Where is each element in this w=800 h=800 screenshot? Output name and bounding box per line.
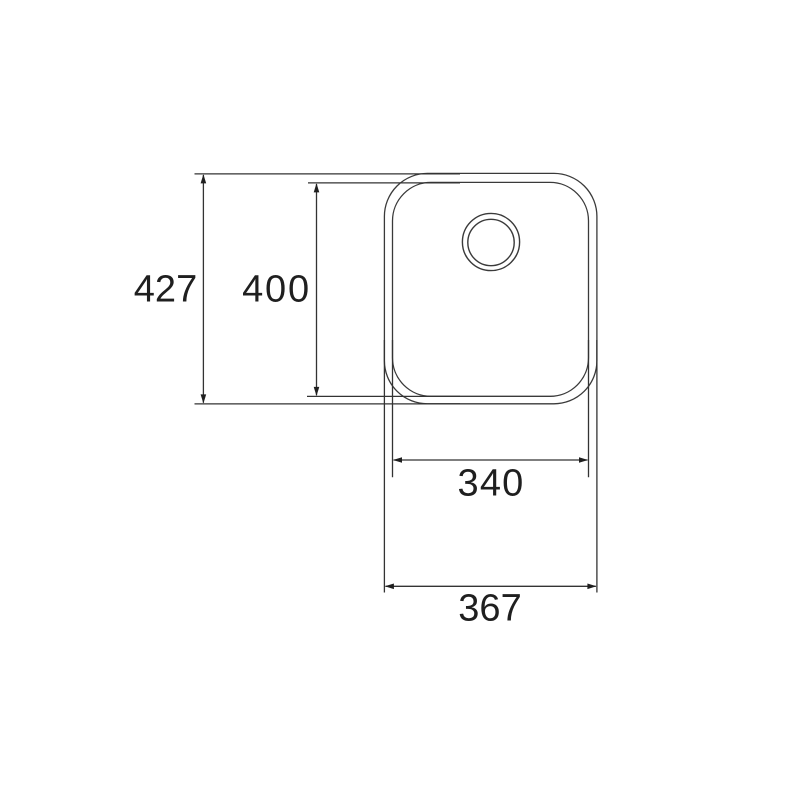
svg-text:340: 340 bbox=[457, 462, 524, 504]
svg-text:427: 427 bbox=[134, 268, 197, 310]
svg-text:400: 400 bbox=[242, 268, 311, 310]
svg-text:367: 367 bbox=[458, 588, 521, 630]
